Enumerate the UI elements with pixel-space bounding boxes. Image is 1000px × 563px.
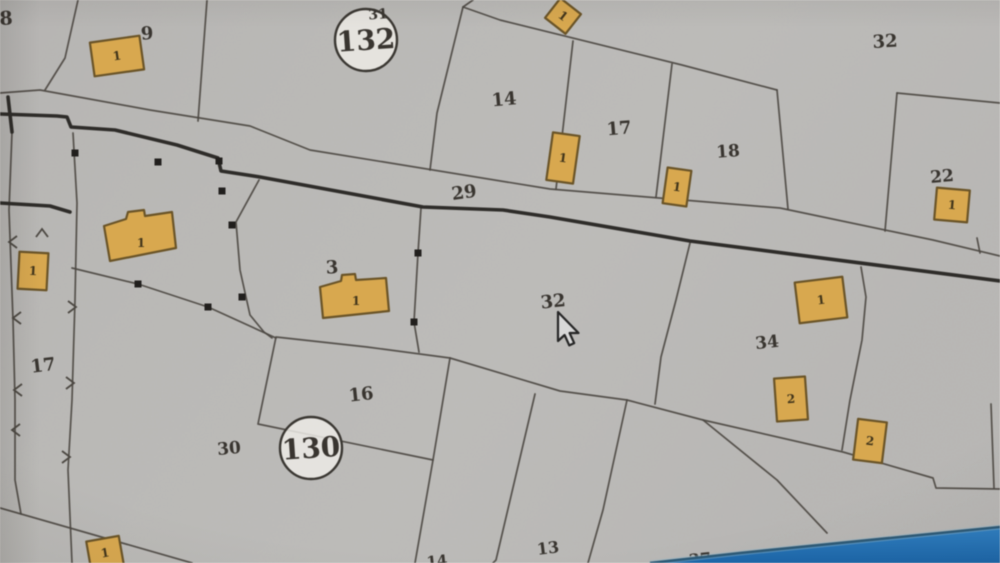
building-number-label: 2 — [786, 392, 795, 407]
survey-point-marker — [411, 319, 418, 326]
building-footprint: 1 — [795, 277, 848, 324]
block-number-text: 132 — [336, 22, 397, 59]
parcel-number-label: 14 — [491, 88, 518, 111]
building-footprint: 2 — [774, 376, 808, 421]
survey-point-marker — [216, 158, 223, 165]
parcel-number-label: 18 — [716, 141, 741, 163]
building-footprint: 1 — [546, 132, 579, 183]
parcel-number-label: 13 — [536, 537, 560, 559]
survey-point-marker — [239, 294, 246, 301]
parcel-number-label: 8 — [0, 7, 13, 30]
block-number-circle: 130 — [280, 417, 342, 479]
building-footprint: 2 — [853, 419, 887, 463]
survey-point-marker — [415, 250, 422, 257]
parcel-number-label: 16 — [348, 383, 375, 407]
building-footprint: 1 — [18, 252, 49, 290]
paper-grain-texture — [0, 0, 1000, 563]
parcel-number-label: 29 — [450, 181, 478, 205]
survey-point-marker — [229, 222, 236, 229]
survey-point-marker — [72, 150, 79, 157]
survey-point-marker — [205, 304, 212, 311]
block-number-text: 130 — [281, 430, 342, 467]
building-footprint: 1 — [934, 188, 970, 223]
parcel-number-label: 3 — [325, 257, 339, 279]
building-footprint: 1 — [90, 36, 144, 77]
building-number-label: 1 — [947, 198, 957, 213]
parcel-number-label: 31 — [368, 6, 389, 23]
parcel-number-label: 17 — [29, 354, 56, 378]
survey-point-marker — [219, 188, 226, 195]
parcel-number-label: 14 — [426, 551, 449, 563]
parcel-number-label: 9 — [140, 23, 154, 45]
monitor-photo: 111111111221 132130 89311417183222293323… — [0, 0, 1000, 563]
cadastral-map: 111111111221 132130 89311417183222293323… — [0, 0, 1000, 563]
parcel-number-label: 17 — [606, 117, 633, 140]
building-number-label: 1 — [816, 293, 826, 308]
parcel-number-label: 32 — [540, 290, 567, 314]
parcel-number-label: 32 — [872, 31, 898, 53]
building-number-label: 1 — [352, 294, 360, 308]
building-number-label: 1 — [28, 264, 37, 278]
survey-point-marker — [155, 159, 162, 166]
building-number-label: 1 — [137, 236, 145, 250]
building-footprint: 1 — [86, 536, 124, 563]
survey-point-marker — [135, 281, 142, 288]
parcel-number-label: 22 — [929, 166, 954, 188]
parcel-number-label: 34 — [754, 332, 780, 354]
building-number-label: 2 — [865, 434, 875, 449]
parcel-number-label: 30 — [216, 438, 241, 460]
building-footprint: 1 — [663, 168, 692, 207]
